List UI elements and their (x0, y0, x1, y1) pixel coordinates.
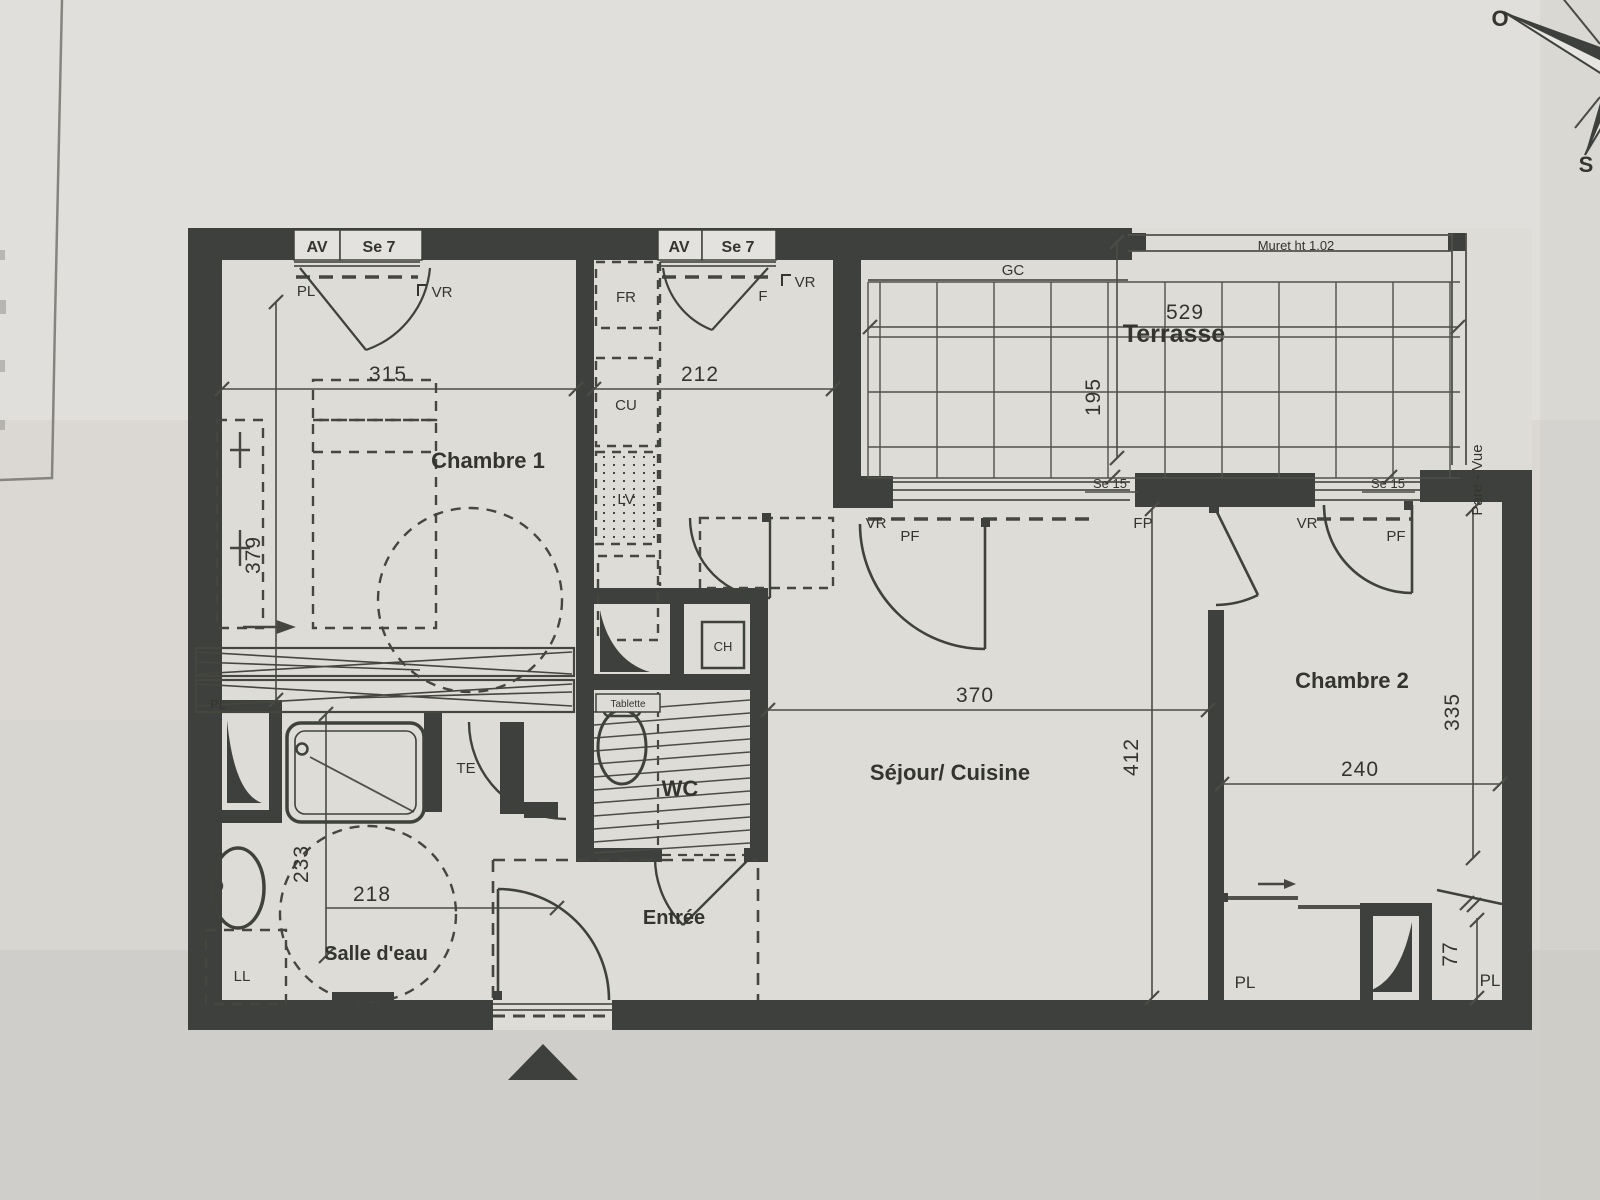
wall-wc-left (576, 588, 594, 860)
room-label-chambre2: Chambre 2 (1295, 668, 1409, 693)
se15-2-label: Se 15 (1371, 476, 1405, 491)
wall-terrace-step (861, 476, 893, 508)
window1-pl-label: PL (297, 283, 315, 300)
wall-chambre1-kitchen (576, 260, 594, 594)
dim-233: 233 (290, 845, 313, 883)
window1-se7-label: Se 7 (363, 239, 396, 256)
window2-av-label: AV (668, 239, 689, 256)
wall-right (1502, 470, 1532, 1030)
dim-379: 379 (242, 536, 265, 574)
pf2-vr-label: VR (1297, 515, 1318, 532)
wall-bottom-right (612, 1000, 1532, 1030)
floor-plan-canvas: O S (0, 0, 1600, 1200)
closet-hall-label: PL (210, 697, 226, 712)
duct2-right (1419, 903, 1432, 1000)
dim-370: 370 (956, 684, 994, 707)
hob-label: CU (615, 397, 637, 414)
room-label-terrasse: Terrasse (1123, 320, 1225, 348)
duct2-left (1360, 903, 1373, 1000)
terrace-gc-label: GC (1002, 262, 1025, 279)
se15-1-label: Se 15 (1093, 476, 1127, 491)
window1-vr-label: VR (432, 284, 453, 301)
wall-shower-right (670, 604, 684, 680)
pare-vue-label: Pare - Vue (1469, 444, 1486, 515)
duct1-bottom (222, 810, 282, 823)
window1-av-label: AV (306, 239, 327, 256)
floor-plan-photo: O S (0, 0, 1600, 1200)
muret-label: Muret ht 1.02 (1258, 238, 1335, 253)
tablette-label: Tablette (610, 699, 645, 710)
room-label-salle-eau: Salle d'eau (324, 943, 428, 965)
dim-335: 335 (1441, 693, 1464, 731)
compass-south-label: S (1579, 152, 1594, 177)
dim-315: 315 (369, 363, 407, 386)
wall-wc-top (576, 674, 768, 690)
room-label-entree: Entrée (643, 907, 705, 929)
window2-f-label: F (758, 288, 767, 305)
dim-77: 77 (1439, 941, 1462, 966)
wall-wc-right (750, 604, 768, 862)
wall-terrace-left (833, 256, 861, 508)
fridge-label: FR (616, 289, 636, 306)
dim-529: 529 (1166, 301, 1204, 324)
dishwasher-label: LV (617, 491, 634, 508)
wall-nook-b (500, 722, 524, 814)
window2-vr-label: VR (795, 274, 816, 291)
fp-label: FP (1133, 515, 1152, 532)
dim-195: 195 (1082, 378, 1105, 416)
wall-sejour-chambre2 (1208, 610, 1224, 1000)
closet-ch2-left-label: PL (1235, 973, 1256, 992)
wall-vent (332, 992, 394, 1002)
room-label-wc: WC (662, 776, 699, 801)
closet-ch2-right-label: PL (1480, 971, 1501, 990)
wall-terrace-top (860, 228, 1132, 260)
room-label-chambre1: Chambre 1 (431, 448, 545, 473)
pf2-label: PF (1386, 528, 1405, 545)
electric-panel-label: TE (456, 760, 475, 777)
pf1-label: PF (900, 528, 919, 545)
room-label-sejour: Séjour/ Cuisine (870, 760, 1030, 785)
window2-se7-label: Se 7 (722, 239, 755, 256)
dim-240: 240 (1341, 758, 1379, 781)
pf1-vr-label: VR (866, 515, 887, 532)
duct1-right (269, 700, 282, 823)
wall-nook-a (424, 712, 442, 812)
wall-shower-top (576, 588, 768, 604)
washing-machine-label: LL (234, 968, 251, 985)
dim-218: 218 (353, 883, 391, 906)
dim-412: 412 (1120, 738, 1143, 776)
water-heater-label: CH (714, 639, 733, 654)
dim-212: 212 (681, 363, 719, 386)
compass-west-label: O (1491, 6, 1508, 31)
